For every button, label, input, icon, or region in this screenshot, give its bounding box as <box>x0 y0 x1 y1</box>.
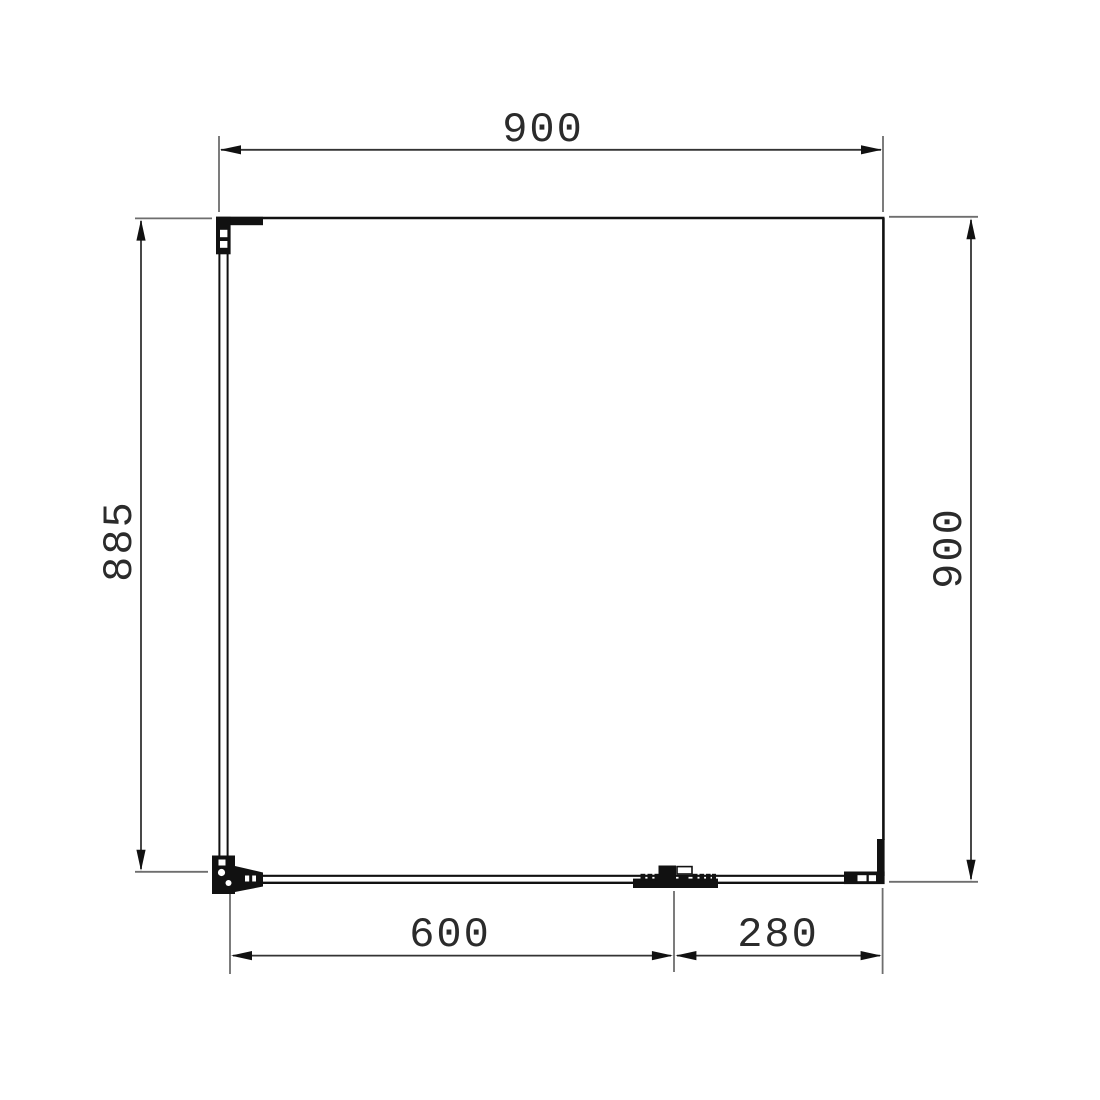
dim-label-top-width: 900 <box>502 109 584 151</box>
technical-drawing-canvas: 900 885 900 600 280 <box>0 0 1100 1100</box>
arrow-left-down <box>136 850 145 871</box>
arrow-280-left <box>675 951 696 960</box>
arrow-600-left <box>231 951 252 960</box>
dim-label-left-height: 885 <box>99 500 141 582</box>
wall-profile-bottom-right <box>844 839 885 884</box>
corner-hinge-bottom-left <box>212 856 263 895</box>
arrow-top-right <box>861 145 882 154</box>
extension-lines <box>135 136 978 974</box>
dim-label-right-height: 900 <box>929 507 971 589</box>
enclosure-outline <box>216 218 885 883</box>
arrow-600-right <box>652 951 673 960</box>
arrow-280-right <box>861 951 882 960</box>
dimension-arrowheads <box>136 145 975 960</box>
arrow-right-down <box>966 860 975 881</box>
dimension-lines <box>141 150 971 956</box>
wall-profile-top-left <box>216 217 263 255</box>
dim-label-bottom-panel-width: 280 <box>737 914 819 956</box>
dim-label-bottom-door-width: 600 <box>409 914 491 956</box>
arrow-left-up <box>136 220 145 241</box>
arrow-right-up <box>966 218 975 239</box>
arrow-top-left <box>220 145 241 154</box>
